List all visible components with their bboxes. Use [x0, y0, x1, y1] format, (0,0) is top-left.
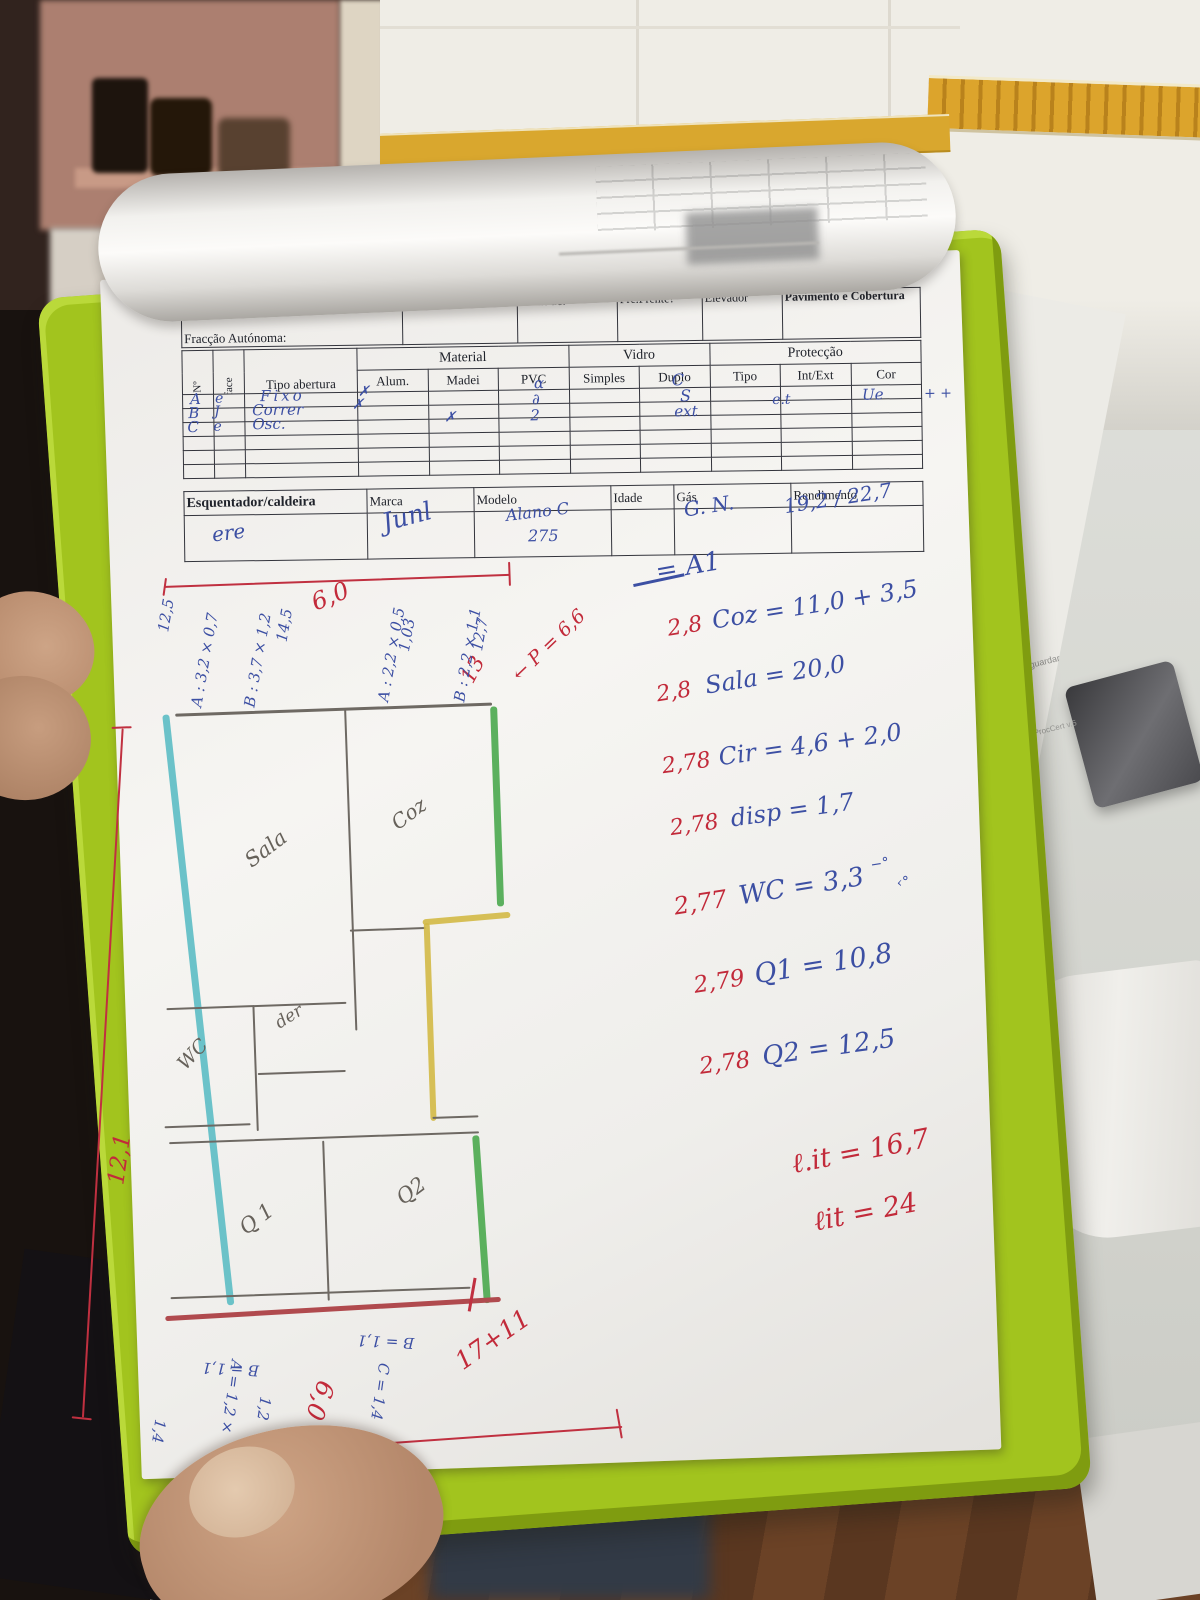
hw-row-b-face: J: [214, 405, 220, 419]
dim-label-top: 6,0: [308, 578, 352, 615]
hw-row-b-int-ext: e.t: [772, 393, 791, 407]
hw-row-c-tipo: Osc.: [252, 417, 285, 432]
calc-sub: ‹°: [896, 874, 911, 892]
calc-body: Sala = 20,0: [703, 650, 847, 700]
yellow-tile-strip-right: [927, 75, 1200, 141]
form-paper: Bucah Olago Fracção Autónoma: Ano de Con…: [100, 250, 1001, 1479]
red-pencil-bottom-line: [165, 1297, 501, 1321]
calc-body: Q2 = 12,5: [760, 1024, 897, 1072]
wall-bottom: [171, 1287, 471, 1300]
calc-line: 2,8 Sala = 20,0: [655, 652, 848, 707]
wall-divider-sala-coz: [344, 710, 358, 1031]
room-label-q1: Q1: [236, 1196, 283, 1238]
curl-gray-blob: [685, 207, 819, 265]
col-face: face: [223, 377, 235, 394]
calc-coef: 2,8: [666, 612, 704, 642]
green-highlight-right-wall-top: [490, 706, 504, 906]
col-simples: Simples: [569, 366, 640, 389]
bottom-note-5: 1,4: [149, 1418, 167, 1444]
group-vidro: Vidro: [568, 343, 709, 367]
hw-row-c-face: e: [213, 420, 221, 434]
calc-coef: 2,78: [660, 748, 712, 780]
group-proteccao: Protecção: [709, 340, 921, 365]
tile-grout-h1: [380, 26, 960, 29]
yellow-highlight-wall-v: [424, 923, 437, 1121]
side-note-5: 1,03: [397, 617, 418, 653]
wall-notch: [350, 927, 426, 932]
calc-line: 2,78 disp = 1,7: [668, 789, 855, 840]
hw-row-a-simples: α: [534, 376, 544, 391]
calc-total-1: ℓ.it = 16,7: [790, 1125, 932, 1178]
hw-row-c-prot: ext: [674, 404, 698, 419]
col-int-ext: Int/Ext: [780, 363, 851, 386]
side-note-7: 12,7: [470, 617, 491, 653]
calc-coef: 2,78: [698, 1047, 752, 1080]
hw-heater-name: ere: [211, 521, 246, 545]
calc-body: WC = 3,3: [737, 862, 866, 911]
photo-scene: ambos guardar MobileDocProcCert v.5 Buca…: [0, 0, 1200, 1600]
hw-row-b-cor: Ue: [862, 387, 884, 402]
room-label-sala: Sala: [241, 827, 291, 872]
bottom-note-4: 1,2: [254, 1396, 272, 1422]
hw-margin-marks: + +: [924, 386, 952, 400]
col-madei: Madei: [428, 368, 499, 391]
col-tipo: Tipo: [710, 364, 781, 387]
calc-line: 2,8 Coz = 11,0 + 3,5: [665, 576, 919, 640]
bottom-note-1: B = 1,1: [357, 1332, 415, 1350]
hw-row-b-simples: ∂: [532, 392, 540, 407]
dim-label-p: ← P = 6,6: [509, 606, 589, 684]
white-floor-corner: [1074, 1422, 1200, 1600]
floor-plan: Sala Coz WC der Q1 Q2: [160, 688, 532, 1340]
heater-col-idade: Idade: [611, 485, 674, 510]
calc-coef: 2,77: [672, 885, 729, 921]
wall-q-divider: [322, 1141, 330, 1301]
calc-coef: 2,78: [668, 809, 720, 841]
side-note-0: 12,5: [156, 598, 177, 634]
calc-body: disp = 1,7: [729, 787, 856, 832]
wall-top: [175, 703, 492, 717]
calc-body: Cir = 4,6 + 2,0: [717, 718, 904, 771]
kitchen-jar-2: [150, 98, 212, 176]
side-note-2: B : 3,7 × 1,2: [242, 612, 273, 709]
bottom-note-2: C = 1,4: [368, 1362, 391, 1421]
dim-label-left: 12,1: [105, 1132, 135, 1186]
calc-line: 2,79 Q1 = 10,8: [692, 940, 895, 998]
wall-coz-bottom-small: [432, 1115, 478, 1119]
calc-line: 2,78 Q2 = 12,5: [698, 1026, 897, 1079]
heater-label: Esquentador/caldeira: [184, 489, 367, 516]
red-pencil-bottom-tick: [468, 1278, 476, 1312]
dim-tick-top-right: [508, 562, 511, 586]
side-note-3: 14,5: [275, 608, 296, 644]
calc-line: 2,78 Cir = 4,6 + 2,0: [660, 720, 903, 778]
calc-line: 2,77 WC = 3,3 −° ‹°: [671, 853, 910, 926]
group-material: Material: [357, 345, 569, 370]
calc-body: Q1 = 10,8: [752, 938, 894, 990]
field-pavimento: Pavimento e Cobertura: [782, 287, 921, 339]
calc-total-2: ℓit = 24: [811, 1189, 919, 1236]
calc-coef: 2,79: [692, 965, 747, 999]
calc-body: Coz = 11,0 + 3,5: [710, 574, 920, 634]
dim-tick-bottom-right: [616, 1409, 624, 1439]
hw-row-c-pvc: ✗: [444, 410, 456, 424]
hw-row-b-alum: ✗: [352, 398, 364, 412]
hw-heater-modelo2: 275: [528, 528, 559, 544]
wall-der-bottom: [258, 1070, 346, 1075]
calc-coef: 2,8: [655, 677, 693, 707]
yellow-highlight-wall-h: [422, 912, 510, 926]
form-tables: Fracção Autónoma: Ano de Const: Altitude…: [181, 287, 925, 562]
dim-label-bottom-60: 6,0: [302, 1378, 339, 1424]
wall-wc-der-divider: [252, 1005, 259, 1131]
hw-row-c-simples: 2: [530, 408, 540, 423]
side-note-1: A : 3,2 × 0,7: [189, 612, 220, 708]
room-label-coz: Coz: [388, 794, 430, 833]
calc-sup: −°: [869, 855, 890, 874]
room-label-q2: Q2: [393, 1174, 430, 1209]
room-label-der: der: [273, 1002, 307, 1032]
kitchen-jar-1: [92, 78, 148, 173]
hw-row-c-no: C: [187, 420, 199, 435]
col-cor: Cor: [851, 362, 922, 385]
